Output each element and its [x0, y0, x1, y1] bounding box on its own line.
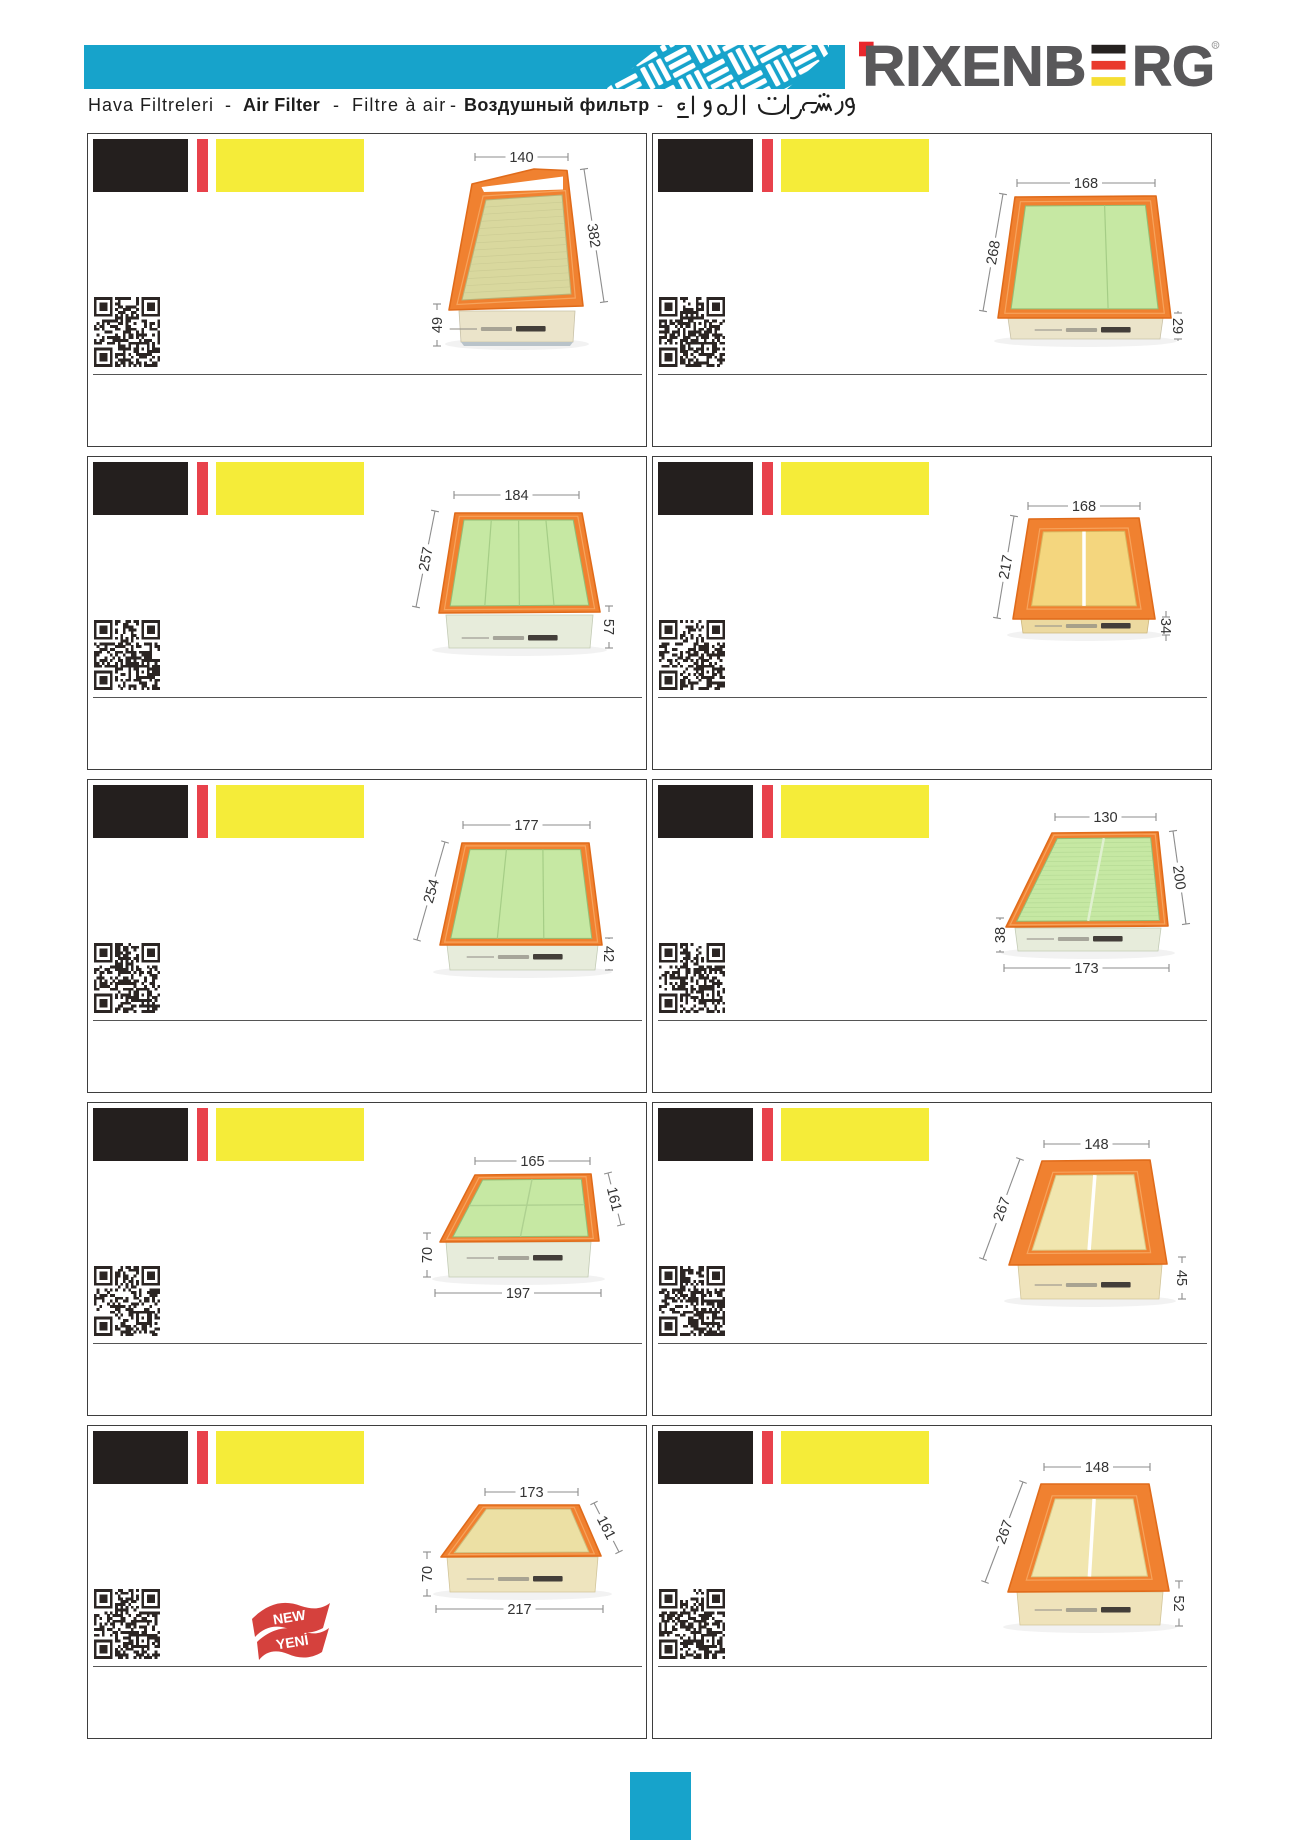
svg-text:257: 257 — [416, 546, 436, 573]
svg-text:29: 29 — [1169, 318, 1185, 334]
svg-text:38: 38 — [993, 927, 1009, 943]
svg-text:161: 161 — [593, 1513, 618, 1542]
svg-text:168: 168 — [1071, 499, 1095, 515]
svg-text:217: 217 — [507, 1602, 531, 1618]
svg-text:254: 254 — [421, 877, 443, 905]
svg-text:168: 168 — [1073, 176, 1097, 192]
svg-text:49: 49 — [430, 317, 446, 333]
svg-text:42: 42 — [600, 946, 616, 962]
svg-text:57: 57 — [600, 619, 616, 635]
svg-text:52: 52 — [1170, 1595, 1186, 1611]
svg-text:45: 45 — [1173, 1270, 1189, 1286]
svg-text:200: 200 — [1168, 864, 1187, 890]
svg-text:RG: RG — [1132, 38, 1215, 96]
svg-text:70: 70 — [420, 1566, 436, 1582]
svg-text:177: 177 — [514, 818, 538, 834]
svg-text:165: 165 — [520, 1154, 544, 1170]
svg-text:70: 70 — [420, 1247, 436, 1263]
svg-text:130: 130 — [1093, 810, 1117, 826]
svg-text:217: 217 — [996, 554, 1016, 581]
svg-text:382: 382 — [583, 222, 602, 248]
svg-text:148: 148 — [1084, 1460, 1108, 1476]
svg-text:RIXENB: RIXENB — [863, 38, 1087, 96]
svg-text:148: 148 — [1084, 1137, 1108, 1153]
svg-text:184: 184 — [504, 488, 528, 504]
svg-text:268: 268 — [983, 239, 1003, 266]
svg-text:267: 267 — [993, 1518, 1016, 1546]
svg-text:267: 267 — [990, 1195, 1013, 1223]
svg-text:173: 173 — [1074, 961, 1098, 977]
svg-text:140: 140 — [509, 150, 533, 166]
svg-text:173: 173 — [519, 1485, 543, 1501]
svg-text:34: 34 — [1157, 618, 1173, 634]
svg-text:197: 197 — [506, 1286, 530, 1302]
svg-text:161: 161 — [603, 1185, 624, 1213]
svg-text:R: R — [1213, 43, 1218, 49]
